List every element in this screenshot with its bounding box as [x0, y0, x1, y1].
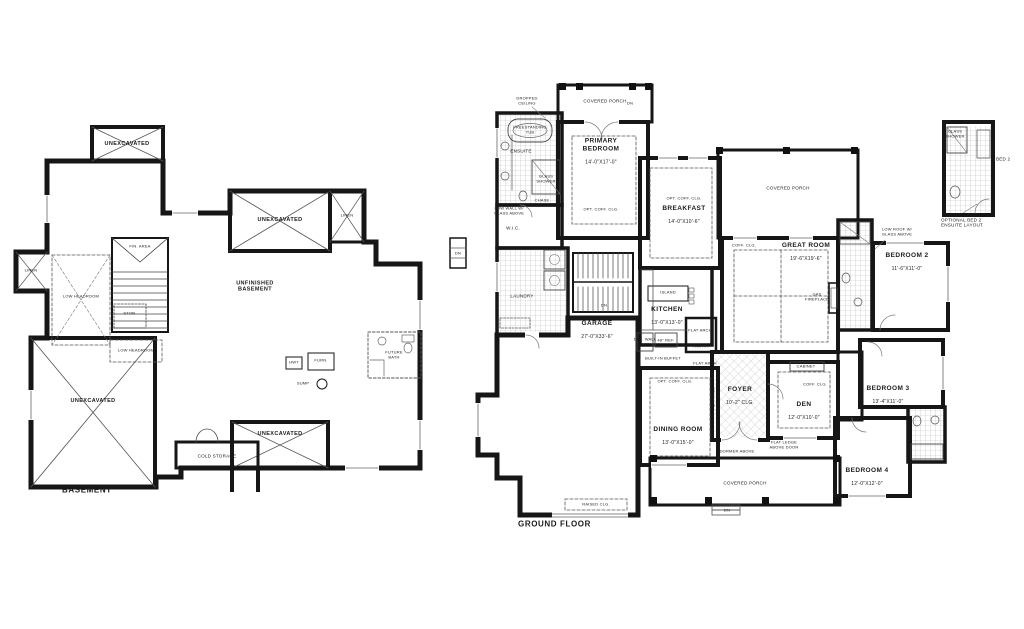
breakfast-dims: 14'-0"X10'-6" — [662, 221, 705, 227]
caption-ground-floor: GROUND FLOOR — [518, 519, 591, 528]
great-room-name: GREAT ROOM — [782, 243, 830, 250]
label-inset-glass-shower: GLASS SHOWER — [945, 129, 964, 138]
label-chase: CHASE — [535, 199, 550, 204]
garage-dims: 27'-0"X33'-6" — [581, 336, 612, 342]
room-label-bedroom3: BEDROOM 3 13'-4"X11'-0" — [867, 378, 910, 414]
label-wic: W.I.C. — [506, 225, 520, 230]
primary-bedroom-dims: 14'-0"X17'-0" — [583, 160, 620, 166]
den-name: DEN — [788, 402, 819, 409]
room-label-foyer: FOYER 10'-2" CLG. — [726, 379, 754, 415]
label-glass-shower: GLASS SHOWER — [536, 174, 555, 183]
label-sump: SUMP — [297, 382, 309, 387]
bedroom3-name: BEDROOM 3 — [867, 386, 910, 393]
label-linen-top: LINEN — [341, 214, 354, 219]
bedroom3-dims: 13'-4"X11'-0" — [867, 401, 910, 407]
label-inset-bed2: BED 2 — [996, 156, 1010, 161]
floor-plan-canvas: UNEXCAVATED UNEXCAVATED LINEN LINEN LOW … — [0, 0, 1024, 629]
label-gas-fireplace: GAS FIREPLACE — [805, 292, 829, 301]
label-opt-coff-breakfast: OPT. COFF. CLG. — [666, 197, 701, 202]
label-dn-front-steps: DN — [724, 509, 730, 514]
room-label-dining: DINING ROOM 13'-0"X15'-0" — [653, 419, 702, 455]
great-room-dims: 19'-6"X19'-6" — [782, 258, 830, 264]
label-flat-arch-2: FLAT ARCH — [693, 362, 716, 367]
primary-bedroom-name: PRIMARY BEDROOM — [583, 138, 620, 153]
caption-inset: OPTIONAL BED 2 ENSUITE LAYOUT — [941, 218, 983, 229]
room-label-kitchen: KITCHEN 13'-0"X13'-0" — [651, 299, 683, 335]
label-laundry: LAUNDRY — [510, 293, 533, 298]
label-unexcavated-top-left: UNEXCAVATED — [104, 141, 149, 147]
label-pantry: PANTRY — [692, 345, 709, 350]
bedroom2-name: BEDROOM 2 — [886, 253, 929, 260]
label-unexcavated-big: UNEXCAVATED — [70, 398, 115, 404]
label-dn-side-steps: DN — [455, 252, 461, 257]
label-dropped-ceiling: DROPPED CEILING — [516, 96, 537, 105]
label-linen-left: LINEN — [25, 269, 38, 274]
label-hwt: HWT — [289, 361, 299, 366]
label-covered-porch-top: COVERED PORCH — [583, 98, 626, 103]
label-unfinished-basement: UNFINISHED BASEMENT — [236, 281, 274, 294]
label-low-headroom-mid: LOW HEADROOM — [118, 349, 154, 354]
label-covered-porch-right: COVERED PORCH — [766, 185, 809, 190]
label-unexcavated-top-mid: UNEXCAVATED — [257, 217, 302, 223]
breakfast-name: BREAKFAST — [662, 206, 705, 213]
label-stor: STOR. — [123, 312, 136, 317]
den-dims: 12'-0"X10'-0" — [788, 417, 819, 423]
label-coff-den: COFF. CLG. — [803, 383, 827, 388]
kitchen-dims: 13'-0"X13'-0" — [651, 322, 683, 328]
label-low-headroom-left: LOW HEADROOM — [63, 295, 99, 300]
label-ref48: 48" REF. — [657, 339, 674, 344]
label-dbl-oven: DBL. WALL OVEN — [634, 337, 657, 346]
label-low-roof: LOW ROOF W/ GLASS ABOVE — [882, 227, 912, 236]
room-label-primary-bedroom: PRIMARY BEDROOM 14'-0"X17'-0" — [583, 130, 620, 173]
label-cabinet: CABINET — [797, 365, 816, 370]
room-label-breakfast: BREAKFAST 14'-0"X10'-6" — [662, 198, 705, 234]
label-unexcavated-bottom: UNEXCAVATED — [257, 431, 302, 437]
label-coff-great: COFF. CLG. — [732, 244, 756, 249]
label-dn-stairs: DN — [601, 304, 607, 309]
foyer-dims: 10'-2" CLG. — [726, 402, 754, 408]
plan-linework — [0, 0, 1024, 629]
label-future-bath: FUTURE BATH — [385, 350, 402, 359]
label-furn: FURN. — [314, 359, 327, 364]
label-cold-storage: COLD STORAGE — [198, 453, 237, 458]
bedroom2-dims: 11'-6"X11'-0" — [886, 268, 929, 274]
kitchen-name: KITCHEN — [651, 307, 683, 314]
label-flat-arch-1: FLAT ARCH — [688, 329, 711, 334]
label-low-wall: LOW WALL W/ GLASS ABOVE — [494, 206, 524, 215]
label-island: ISLAND — [660, 291, 676, 296]
bedroom4-name: BEDROOM 4 — [846, 468, 889, 475]
dining-name: DINING ROOM — [653, 427, 702, 434]
label-fin-area: FIN. AREA — [129, 245, 150, 250]
label-opt-coff-primary: OPT. COFF. CLG. — [583, 208, 618, 213]
foyer-name: FOYER — [726, 387, 754, 394]
label-opt-coff-dining: OPT. COFF. CLG. — [657, 380, 692, 385]
label-covered-porch-bottom: COVERED PORCH — [723, 480, 766, 485]
label-ensuite: ENSUITE — [510, 148, 531, 153]
label-freestanding-tub: FREESTANDING TUB — [513, 125, 546, 134]
label-dormer-above: DORMER ABOVE — [720, 450, 755, 455]
label-buffet: BUILT-IN BUFFET — [645, 357, 681, 362]
label-dn-porch-top: DN — [627, 102, 633, 107]
bedroom4-dims: 12'-0"X12'-0" — [846, 483, 889, 489]
caption-basement: BASEMENT — [62, 485, 112, 494]
label-flat-ledge: FLAT LEDGE ABOVE DOOR — [770, 440, 799, 449]
basement-linework — [16, 127, 423, 490]
label-flat-arch-3: FLAT ARCH — [712, 386, 717, 409]
room-label-bedroom2: BEDROOM 2 11'-6"X11'-0" — [886, 245, 929, 281]
garage-name: GARAGE — [581, 321, 612, 328]
room-label-den: DEN 12'-0"X10'-0" — [788, 394, 819, 430]
room-label-great-room: GREAT ROOM 19'-6"X19'-6" — [782, 235, 830, 271]
label-raised-clg: RAISED CLG. — [582, 503, 610, 508]
dining-dims: 13'-0"X15'-0" — [653, 442, 702, 448]
room-label-bedroom4: BEDROOM 4 12'-0"X12'-0" — [846, 460, 889, 496]
room-label-garage: GARAGE 27'-0"X33'-6" — [581, 313, 612, 349]
